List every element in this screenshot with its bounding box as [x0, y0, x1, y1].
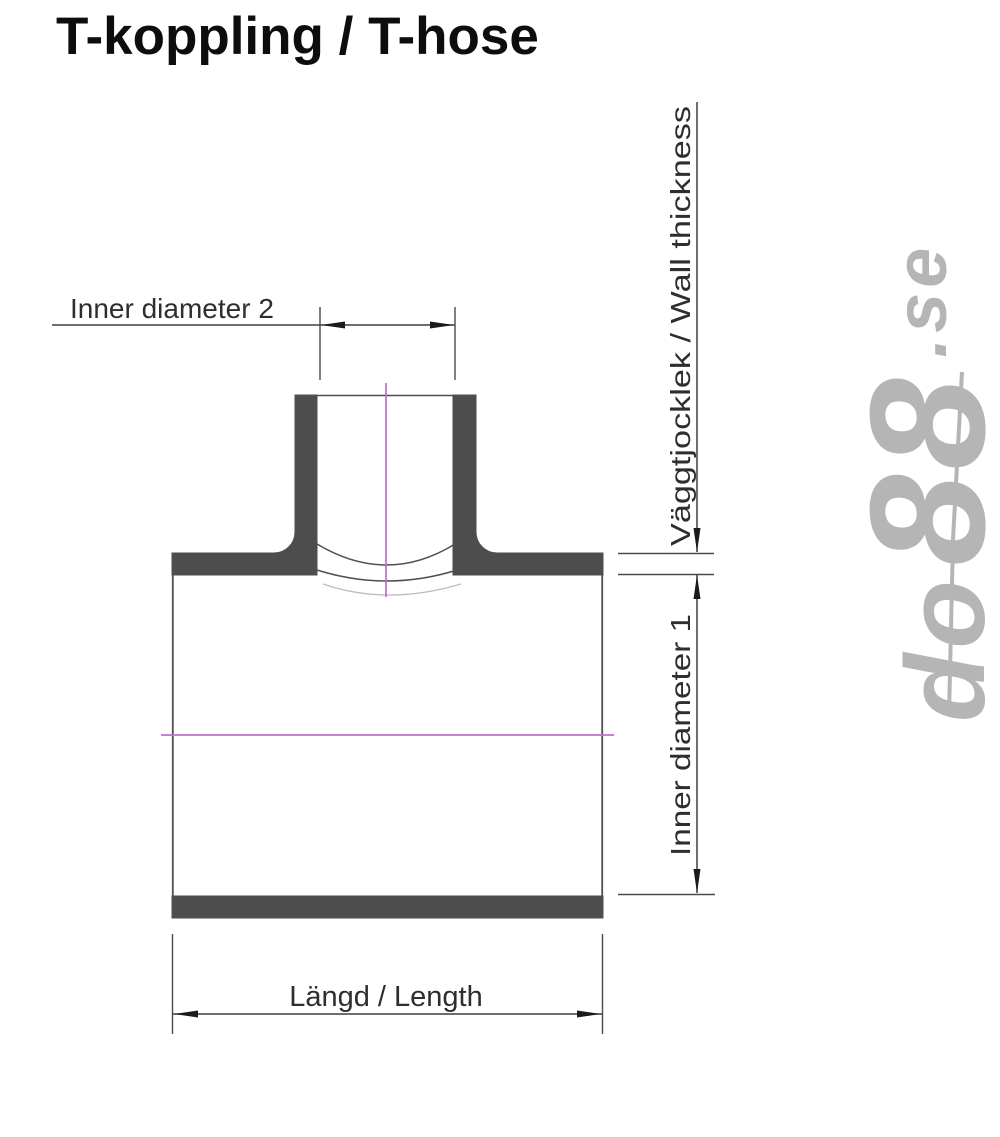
pipe-wall-top-left-and-branch-left [172, 395, 317, 575]
junction-arc-lower [317, 570, 457, 581]
wall-thickness-label: Väggtjocklek / Wall thickness [665, 106, 696, 546]
watermark-text: do 88 .se [836, 243, 1000, 722]
arrowhead-right [430, 322, 454, 329]
length-label: Längd / Length [289, 981, 483, 1013]
watermark-logo: do 88 .se [836, 243, 1000, 722]
inner-diameter-2-label: Inner diameter 2 [70, 293, 274, 324]
tee-coupling-technical-drawing: do 88 .se Inner diameter 2 [0, 0, 1000, 1137]
dimension-length: Längd / Length [172, 934, 603, 1034]
watermark-88: 88 [836, 373, 1000, 565]
dimension-inner-diameter-2: Inner diameter 2 [52, 293, 455, 380]
inner-diameter-1-label: Inner diameter 1 [665, 614, 696, 856]
watermark-tld: .se [882, 243, 962, 358]
dimension-wall-thickness: Väggtjocklek / Wall thickness [618, 102, 714, 575]
watermark-do: do [883, 575, 1000, 722]
arrowhead-left [321, 322, 345, 329]
arrowhead-left [174, 1011, 198, 1018]
pipe-cross-section [161, 383, 614, 918]
arrowhead-down [694, 869, 701, 893]
junction-arc-hidden-edge [323, 584, 461, 595]
dimension-inner-diameter-1: Inner diameter 1 [618, 575, 715, 895]
arrowhead-up [694, 575, 701, 599]
arrowhead-right [577, 1011, 601, 1018]
pipe-wall-top-right-and-branch-right [453, 395, 603, 575]
pipe-wall-bottom [172, 896, 603, 918]
